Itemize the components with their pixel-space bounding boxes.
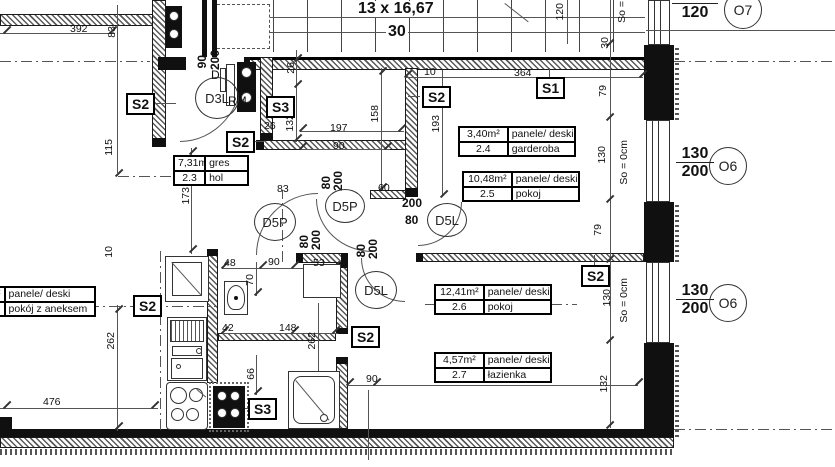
- dim-line: [0, 33, 115, 34]
- window-height: 120: [672, 3, 718, 21]
- stair-line: [218, 32, 645, 33]
- dim: 90: [268, 257, 280, 268]
- wall-cap: [152, 138, 166, 147]
- dim-line: [381, 68, 382, 190]
- room-table-pokoj-26: 12,41m² panele/ deski 2.6 pokoj: [434, 284, 552, 315]
- dim: 90: [366, 374, 378, 385]
- leader-line: [156, 103, 176, 104]
- sink-bowl-icon: [170, 387, 187, 404]
- dim: 79: [598, 85, 609, 97]
- axis-line: [160, 250, 161, 430]
- gas-meter-dial-icon: [241, 67, 252, 78]
- room-name: pokoj: [484, 300, 551, 315]
- wall-exterior-bottom-hatch: [0, 437, 674, 448]
- door-size: 90: [197, 55, 208, 68]
- dim: 26: [264, 121, 276, 132]
- wall-label-s2: S2: [422, 86, 451, 108]
- window-height: 200: [676, 162, 714, 180]
- sill-note: So =: [617, 1, 628, 23]
- room-table-garderoba: 3,40m² panele/ deski 2.4 garderoba: [458, 126, 576, 157]
- dim: 173: [181, 187, 192, 205]
- door-label-d5p: D5P: [325, 189, 365, 223]
- dim-line: [610, 0, 611, 428]
- wall-label-s2: S2: [226, 131, 255, 153]
- floor-plan: 13 x 16,67 30: [0, 0, 835, 467]
- sill-note: So = 0cm: [619, 278, 630, 323]
- room-finish: panele/ deski: [508, 127, 575, 142]
- wall-label-s1: S1: [536, 77, 565, 99]
- axis-line: [0, 61, 150, 62]
- room-table-pokoj-z-aneksem: m² panele/ deski pokój z aneksem: [0, 286, 96, 317]
- washer-grill: [170, 320, 204, 342]
- dim: 130: [602, 289, 613, 307]
- dim-line: [567, 0, 568, 44]
- dim: 148: [279, 323, 297, 334]
- stair-void-dashed: [212, 4, 270, 49]
- room-name: garderoba: [508, 142, 575, 157]
- dim: 392: [70, 24, 88, 35]
- room-number: 2.5: [463, 187, 512, 202]
- dim: 53: [313, 258, 325, 269]
- dim: 193: [431, 115, 442, 133]
- bathtub-drain-icon: [320, 414, 328, 422]
- room-name: pokoj: [512, 187, 579, 202]
- room-finish: panele/ deski: [512, 172, 579, 187]
- radiator-valve-icon: [169, 29, 179, 39]
- dim: 60: [378, 183, 390, 194]
- door-size: 200: [402, 198, 422, 209]
- window-width: 130: [676, 145, 714, 162]
- wall-cap: [207, 249, 218, 256]
- wall-insulation-bottom: [0, 449, 674, 455]
- room-name: pokój z aneksem: [5, 302, 95, 317]
- window-height: 200: [676, 299, 714, 317]
- wall-insulation: [675, 343, 679, 437]
- dim: 364: [514, 68, 532, 79]
- room-area: 4,57m²: [435, 353, 484, 368]
- dim: 132: [599, 375, 610, 393]
- room-number: 2.6: [435, 300, 484, 315]
- leader-line: [408, 96, 420, 97]
- room-finish: gres: [205, 156, 248, 171]
- wall-exterior-left: [152, 0, 166, 146]
- door-size: 200: [368, 239, 379, 259]
- dim-line: [300, 131, 404, 132]
- window-symbol-o7: O7: [724, 0, 762, 29]
- dim: 10: [104, 246, 115, 258]
- wall-interior: [405, 68, 418, 194]
- dim: 66: [246, 368, 257, 380]
- window-label-o6: 130 200: [676, 145, 714, 180]
- room-table-lazienka: 4,57m² panele/ deski 2.7 łazienka: [434, 352, 552, 383]
- sink-bowl-icon: [171, 408, 184, 421]
- room-table-pokoj-25: 10,48m² panele/ deski 2.5 pokoj: [462, 171, 580, 202]
- wall-entry-block: [158, 57, 186, 70]
- wall-cap: [416, 253, 423, 262]
- room-number: 2.3: [174, 171, 205, 186]
- radiator-valve-icon: [169, 11, 179, 21]
- room-area: 7,31m²: [174, 156, 205, 171]
- door-label-d3l: D3L: [195, 77, 239, 119]
- room-area: 12,41m²: [435, 285, 484, 300]
- door-label-d5l: D5L: [427, 203, 467, 237]
- axis-line: [118, 176, 173, 177]
- wall-insulation: [675, 202, 679, 262]
- room-name: hol: [205, 171, 248, 186]
- door-size: 200: [210, 50, 221, 70]
- wall-cap: [336, 357, 348, 364]
- room-number: 2.4: [459, 142, 508, 157]
- wall-label-s2: S2: [581, 265, 610, 287]
- stair-wall: [212, 0, 217, 57]
- window-o6-1: [646, 120, 670, 202]
- sill-line: [646, 30, 835, 31]
- wall-exterior-right: [644, 45, 674, 120]
- leader-line: [594, 255, 595, 265]
- burner-icon: [217, 408, 227, 418]
- washer-basin: [171, 358, 203, 379]
- room-finish: panele/ deski: [5, 287, 95, 302]
- washer-knob-icon: [196, 348, 202, 354]
- dim: 262: [106, 332, 117, 350]
- window-frame: [648, 0, 670, 45]
- dim: 476: [43, 397, 61, 408]
- room-finish: panele/ deski: [484, 285, 551, 300]
- stair-width-label: 30: [386, 24, 408, 40]
- wall-cap: [0, 417, 12, 430]
- dim-line: [0, 408, 158, 409]
- burner-icon: [230, 391, 240, 401]
- room-area: 3,40m²: [459, 127, 508, 142]
- window-symbol-o6: O6: [709, 147, 747, 185]
- window-symbol-o6: O6: [709, 284, 747, 322]
- dim: 30: [600, 37, 611, 49]
- dim: 70: [245, 274, 256, 286]
- washer-drain-icon: [176, 364, 181, 369]
- door-size: 200: [333, 171, 344, 191]
- wall-label-s3: S3: [266, 96, 295, 118]
- burner-icon: [230, 408, 240, 418]
- wall-exterior-bottom: [0, 429, 674, 437]
- dim: 262: [307, 332, 318, 350]
- wall-label-s3: S3: [248, 398, 277, 420]
- wall-label-s2: S2: [351, 326, 380, 348]
- stair-line: [218, 17, 645, 18]
- room-table-hol: 7,31m² gres 2.3 hol: [173, 155, 249, 186]
- room-finish: panele/ deski: [484, 353, 551, 368]
- door-label-d5l: D5L: [355, 271, 397, 309]
- window-o6-2: [646, 262, 670, 343]
- stair-steps-label: 13 x 16,67: [356, 1, 436, 17]
- dim-line: [318, 303, 319, 379]
- dim: 10: [424, 67, 436, 78]
- wall-exterior-right: [644, 343, 674, 437]
- wall-insulation: [675, 45, 679, 120]
- leader-line: [254, 141, 264, 142]
- dim: 83: [277, 184, 289, 195]
- dim: 42: [222, 323, 234, 334]
- dim: 79: [593, 224, 604, 236]
- sink-bowl-icon: [186, 408, 199, 421]
- door-label-d5p: D5P: [254, 203, 296, 241]
- axis-line: [674, 61, 835, 62]
- door-size: 80: [405, 215, 418, 226]
- dim-line: [300, 149, 390, 150]
- washbasin-drain-icon: [234, 296, 238, 300]
- dim: 130: [597, 146, 608, 164]
- wall-label-s2: S2: [126, 93, 155, 115]
- sill-note: So = 0cm: [619, 140, 630, 185]
- axis-line: [674, 429, 835, 430]
- room-number: 2.7: [435, 368, 484, 383]
- wall-label-s2: S2: [133, 295, 162, 317]
- window-label-o7: 120 120: [672, 0, 718, 21]
- stair-wall: [202, 0, 207, 57]
- room-name: łazienka: [484, 368, 551, 383]
- dim-line: [117, 305, 118, 431]
- dim-line: [368, 390, 369, 460]
- dim-line: [348, 385, 638, 386]
- dim: 26: [286, 62, 297, 74]
- dim: 120: [555, 3, 566, 21]
- wall-exterior-right: [644, 202, 674, 262]
- burner-icon: [217, 391, 227, 401]
- door-size: 200: [311, 230, 322, 250]
- window-label-o6: 130 200: [676, 282, 714, 317]
- window-width: 130: [676, 282, 714, 299]
- dim: 90: [333, 141, 345, 152]
- staircase-treads: [273, 0, 645, 52]
- dim: 197: [330, 123, 348, 134]
- dim: 83: [107, 26, 118, 38]
- dim: 48: [224, 258, 236, 269]
- dim-tick: [635, 378, 643, 386]
- wall-top: [244, 57, 646, 70]
- dim: 158: [370, 105, 381, 123]
- shaft: [303, 264, 341, 298]
- dim: 115: [104, 139, 115, 156]
- room-area: 10,48m²: [463, 172, 512, 187]
